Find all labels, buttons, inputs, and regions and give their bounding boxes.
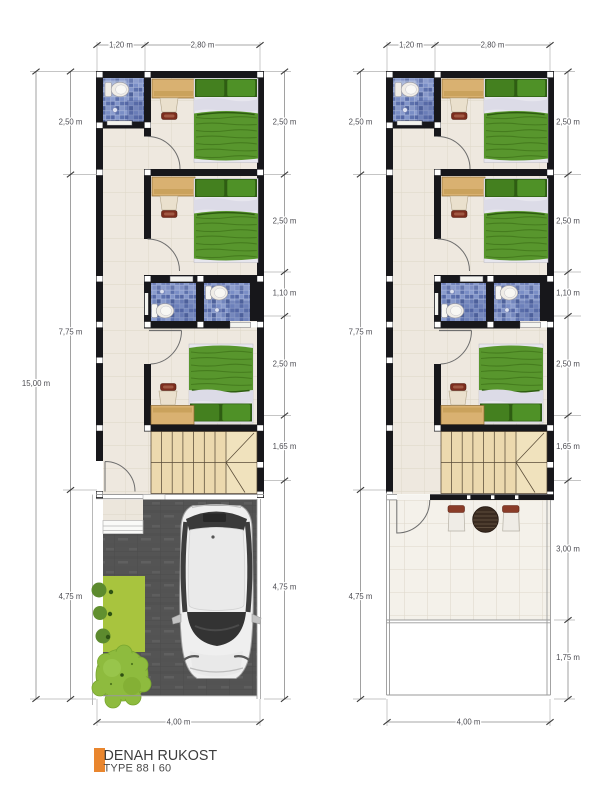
svg-text:2,50 m: 2,50 m <box>556 118 580 127</box>
svg-text:TYPE 88 I 60: TYPE 88 I 60 <box>104 763 172 775</box>
svg-text:15,00 m: 15,00 m <box>22 379 50 388</box>
svg-text:4,75 m: 4,75 m <box>273 583 297 592</box>
svg-text:2,50 m: 2,50 m <box>556 360 580 369</box>
svg-text:4,75 m: 4,75 m <box>59 592 83 601</box>
svg-text:2,80 m: 2,80 m <box>191 41 215 50</box>
svg-text:2,50 m: 2,50 m <box>273 217 297 226</box>
svg-text:7,75 m: 7,75 m <box>349 328 373 337</box>
svg-text:2,50 m: 2,50 m <box>273 118 297 127</box>
svg-text:1,65 m: 1,65 m <box>556 442 580 451</box>
svg-text:DENAH RUKOST: DENAH RUKOST <box>104 748 218 764</box>
svg-text:1,20 m: 1,20 m <box>109 41 133 50</box>
svg-text:2,80 m: 2,80 m <box>481 41 505 50</box>
svg-text:2,50 m: 2,50 m <box>273 360 297 369</box>
svg-text:4,00 m: 4,00 m <box>167 718 191 727</box>
svg-text:3,00 m: 3,00 m <box>556 545 580 554</box>
svg-text:2,50 m: 2,50 m <box>349 118 373 127</box>
svg-text:1,20 m: 1,20 m <box>399 41 423 50</box>
svg-text:4,75 m: 4,75 m <box>349 592 373 601</box>
svg-text:2,50 m: 2,50 m <box>59 118 83 127</box>
svg-text:1,65 m: 1,65 m <box>273 442 297 451</box>
svg-text:7,75 m: 7,75 m <box>59 328 83 337</box>
svg-text:4,00 m: 4,00 m <box>457 718 481 727</box>
svg-text:1,10 m: 1,10 m <box>556 289 580 298</box>
svg-text:1,75 m: 1,75 m <box>556 653 580 662</box>
svg-text:1,10 m: 1,10 m <box>273 289 297 298</box>
svg-text:2,50 m: 2,50 m <box>556 217 580 226</box>
